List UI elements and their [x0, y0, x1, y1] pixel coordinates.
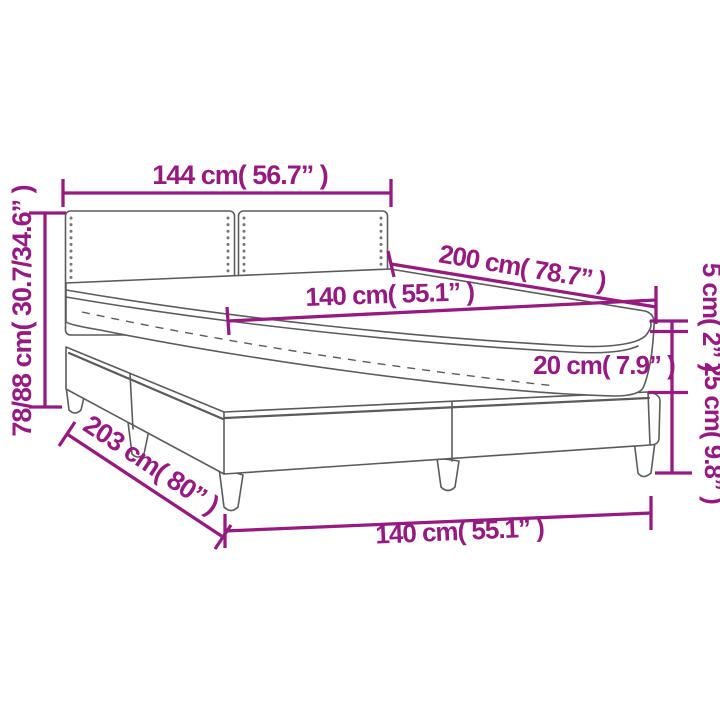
bed-dimension-diagram: 144 cm( 56.7” ) 78/88 cm( 30.7/34.6” ) 2…	[0, 0, 720, 720]
dim-label-base-width: 140 cm( 55.1” )	[375, 512, 545, 549]
diagram-svg: 144 cm( 56.7” ) 78/88 cm( 30.7/34.6” ) 2…	[0, 0, 720, 720]
dim-label-base-height: 25 cm( 9.8” )	[699, 362, 720, 504]
dim-label-total-height: 78/88 cm( 30.7/34.6” )	[7, 185, 37, 436]
dim-label-mattress-width: 140 cm( 55.1” )	[305, 276, 475, 312]
bed-leg	[437, 458, 459, 491]
dim-label-topper-height: 5 cm( 2” )	[697, 263, 720, 372]
dim-label-headboard-width: 144 cm( 56.7” )	[152, 160, 328, 190]
bed-leg	[219, 468, 243, 511]
dim-label-mattress-height: 20 cm( 7.9” )	[533, 350, 675, 380]
